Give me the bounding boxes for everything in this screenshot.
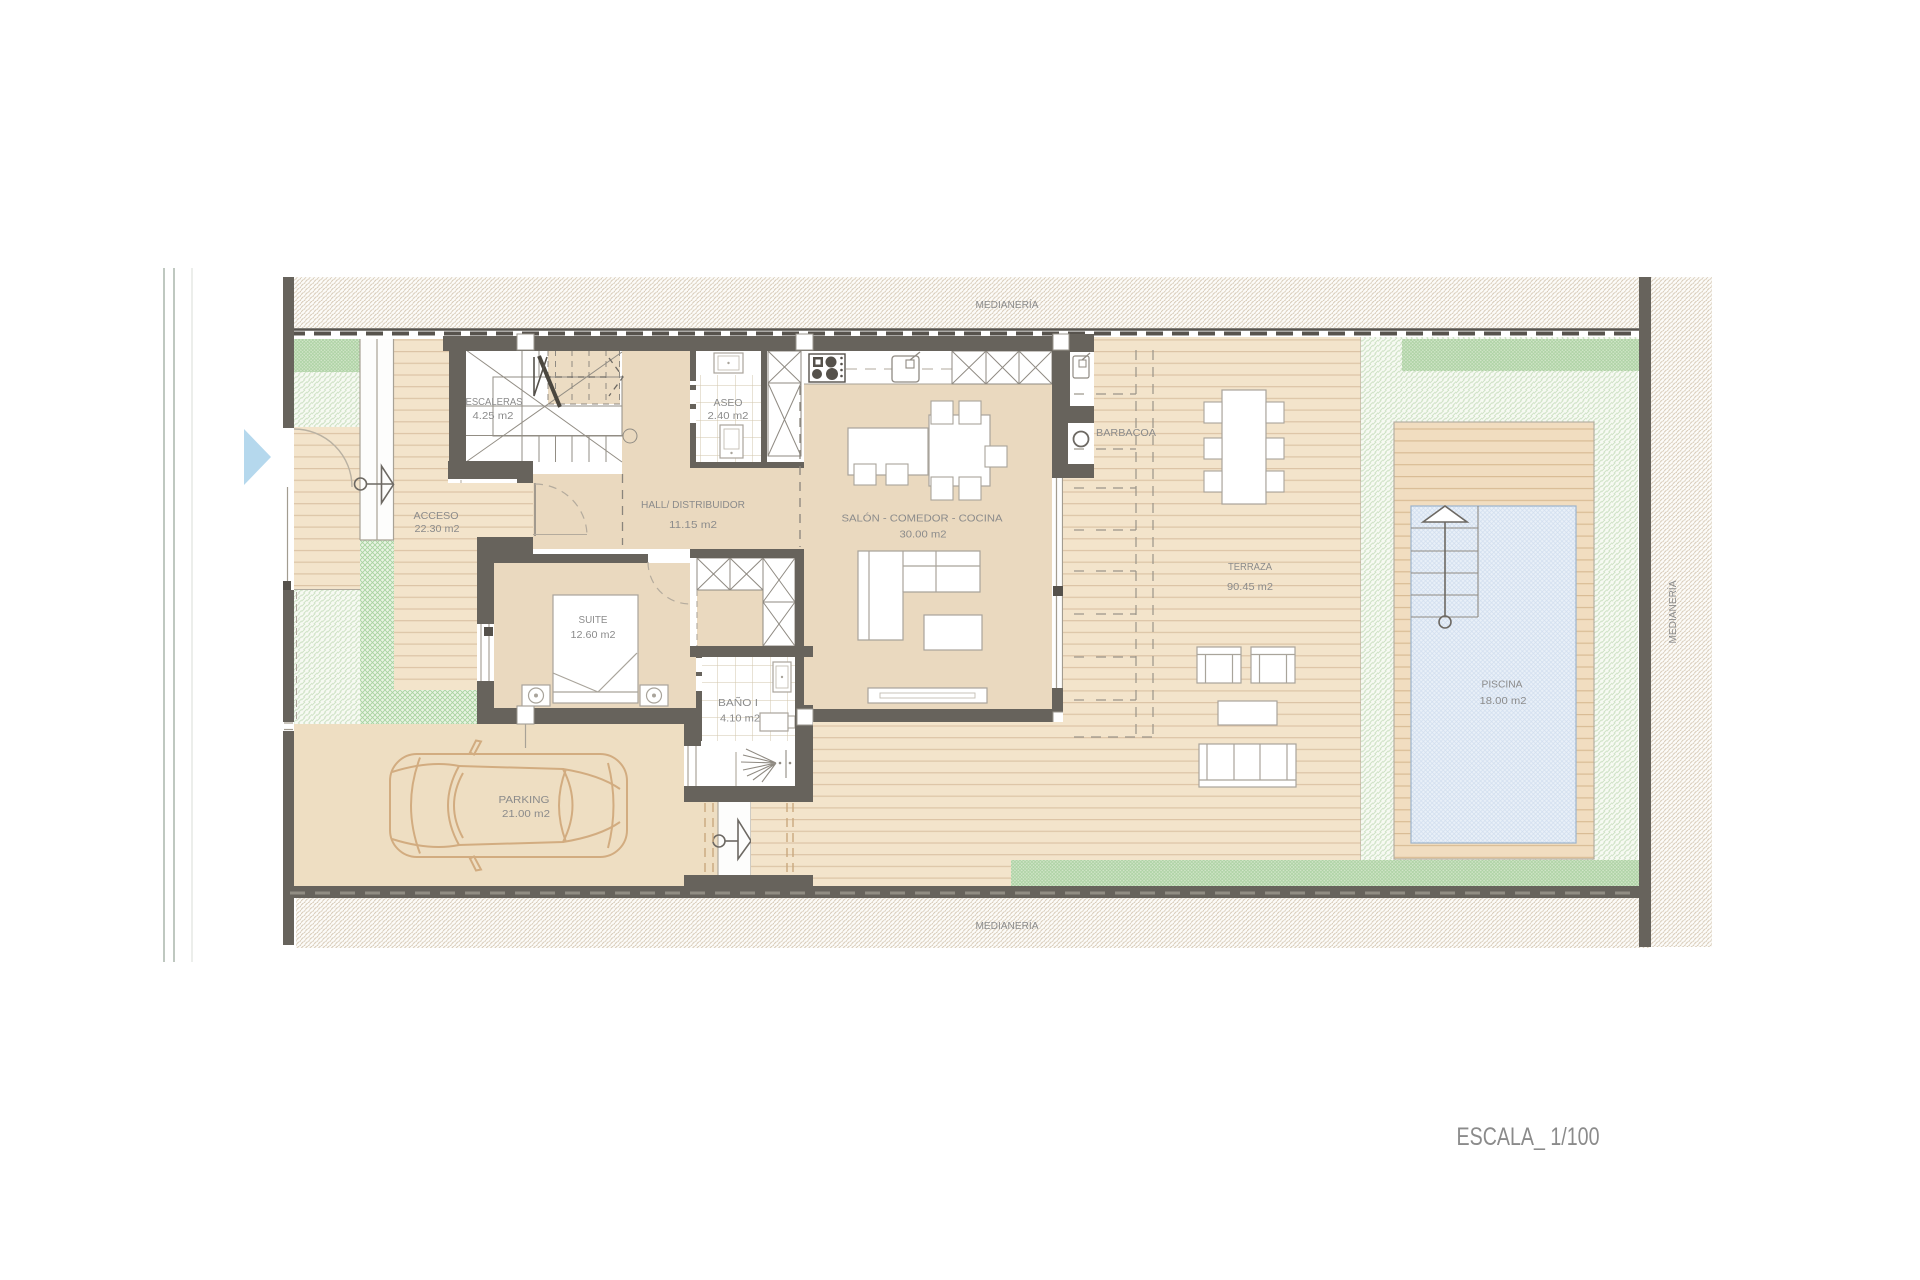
svg-text:30.00 m2: 30.00 m2	[900, 529, 947, 541]
svg-text:BARBACOA: BARBACOA	[1096, 427, 1156, 439]
svg-text:11.15 m2: 11.15 m2	[669, 519, 717, 531]
svg-text:90.45 m2: 90.45 m2	[1227, 581, 1273, 593]
svg-text:ACCESO: ACCESO	[414, 510, 459, 522]
svg-text:SALÓN - COMEDOR - COCINA: SALÓN - COMEDOR - COCINA	[842, 512, 1003, 525]
svg-text:4.25 m2: 4.25 m2	[473, 410, 514, 422]
svg-text:21.00 m2: 21.00 m2	[502, 808, 550, 820]
svg-text:4.10 m2: 4.10 m2	[720, 713, 760, 725]
svg-text:MEDIANERÍA: MEDIANERÍA	[976, 298, 1039, 311]
svg-text:TERRAZA: TERRAZA	[1228, 561, 1272, 573]
svg-text:12.60 m2: 12.60 m2	[571, 629, 616, 641]
svg-text:2.40 m2: 2.40 m2	[708, 410, 749, 422]
svg-text:MEDIANERÍA: MEDIANERÍA	[1666, 580, 1679, 643]
svg-text:SUITE: SUITE	[579, 614, 608, 626]
svg-text:ASEO: ASEO	[714, 397, 743, 409]
svg-text:ESCALA_ 1/100: ESCALA_ 1/100	[1457, 1123, 1600, 1151]
svg-text:PISCINA: PISCINA	[1482, 679, 1523, 691]
svg-text:ESCALERAS: ESCALERAS	[466, 396, 523, 408]
svg-text:22.30 m2: 22.30 m2	[415, 523, 460, 535]
svg-text:PARKING: PARKING	[499, 794, 550, 806]
svg-text:BAÑO I: BAÑO I	[718, 696, 758, 709]
svg-text:18.00 m2: 18.00 m2	[1480, 695, 1527, 707]
svg-text:MEDIANERÍA: MEDIANERÍA	[976, 919, 1039, 932]
svg-text:HALL/ DISTRIBUIDOR: HALL/ DISTRIBUIDOR	[641, 499, 745, 511]
